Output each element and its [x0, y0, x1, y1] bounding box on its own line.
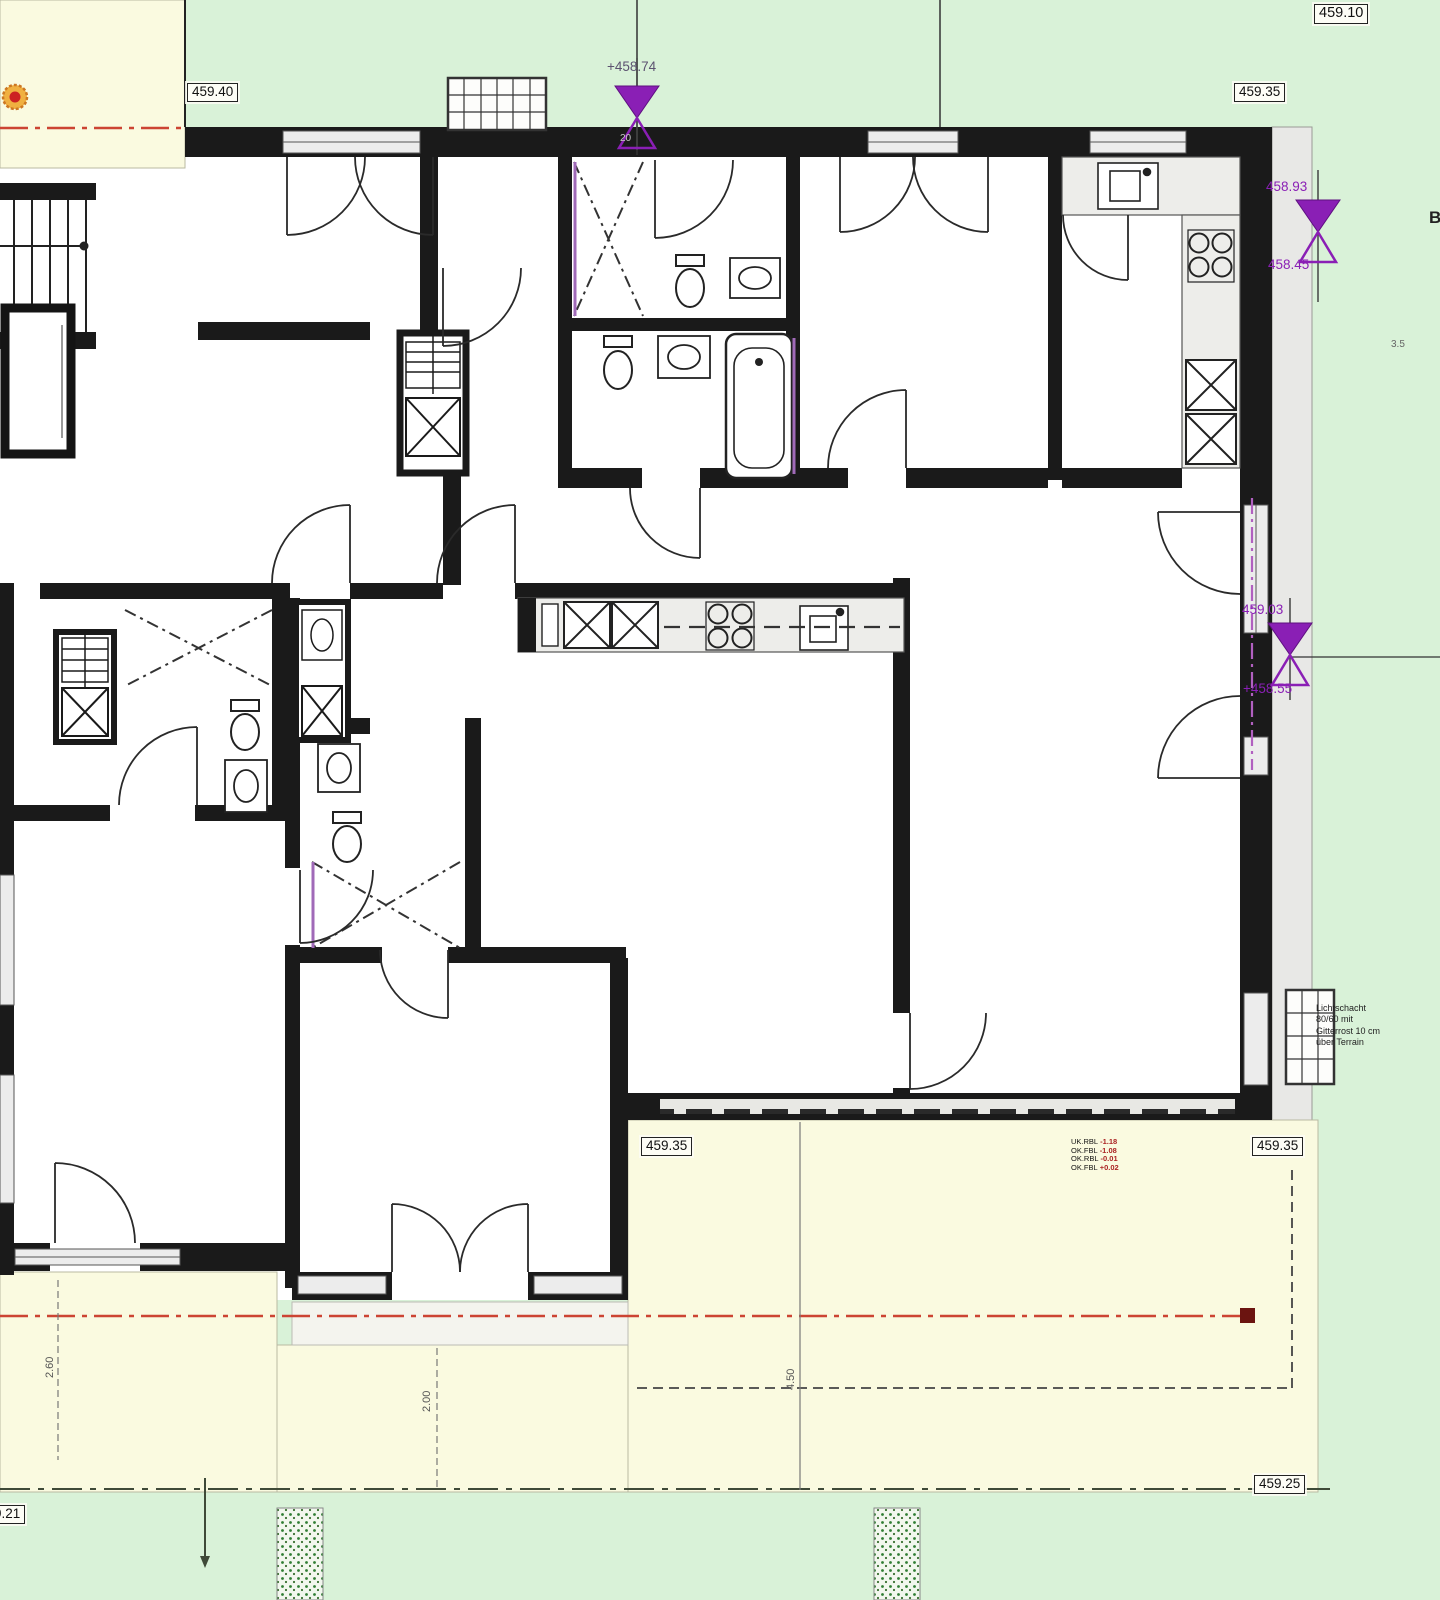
- service-shaft: [56, 632, 114, 742]
- planting-strips: [277, 1508, 920, 1600]
- vertical-dimension: 2.00: [421, 1391, 433, 1412]
- wall-dimension: 20: [620, 133, 631, 144]
- elevation-label: 459.35: [1252, 1137, 1303, 1156]
- level-marker-value: +458.74: [607, 59, 656, 74]
- elevator: [5, 308, 71, 454]
- note-line: Lichtschacht: [1316, 1003, 1436, 1014]
- service-shaft: [400, 333, 466, 473]
- terrace-level-block: UK.RBL-1.18 OK.FBL-1.08 OK.RBL-0.01 OK.F…: [1071, 1138, 1119, 1172]
- vertical-dimension: 2.60: [44, 1357, 56, 1378]
- level-marker-value: 458.45: [1268, 257, 1309, 272]
- vertical-dimension: 4.50: [785, 1369, 797, 1390]
- survey-point: [3, 85, 27, 109]
- bathtub: [726, 334, 794, 478]
- section-marker: B: [1429, 208, 1440, 228]
- note-line: 80/60 mit: [1316, 1014, 1436, 1025]
- level-marker-value: 459.03: [1242, 602, 1283, 617]
- elevation-label: 459.25: [1254, 1475, 1305, 1494]
- edge-dimension: 3.5: [1391, 339, 1405, 350]
- elevation-label: 459.21: [0, 1505, 25, 1524]
- service-shaft: [296, 602, 348, 740]
- level-line: OK.FBL+0.02: [1071, 1164, 1119, 1173]
- elevation-label: 459.40: [187, 83, 238, 102]
- elevation-label: 459.35: [1234, 83, 1285, 102]
- note-line: über Terrain: [1316, 1037, 1436, 1048]
- level-marker-value: +458.55: [1243, 681, 1292, 696]
- note-line: Gitterrost 10 cm: [1316, 1026, 1436, 1037]
- lichtschacht-note: Lichtschacht 80/60 mit Gitterrost 10 cm …: [1316, 1003, 1436, 1048]
- elevation-label: 459.10: [1314, 4, 1368, 24]
- boundary-end-marker: [1240, 1308, 1255, 1323]
- level-marker-value: 458.93: [1266, 179, 1307, 194]
- elevation-label: 459.35: [641, 1137, 692, 1156]
- floor-plan-drawing: [0, 0, 1440, 1600]
- line-arrowhead: [200, 1556, 210, 1568]
- floor-plan-canvas: 459.40 459.10 459.35 459.35 459.35 459.2…: [0, 0, 1440, 1600]
